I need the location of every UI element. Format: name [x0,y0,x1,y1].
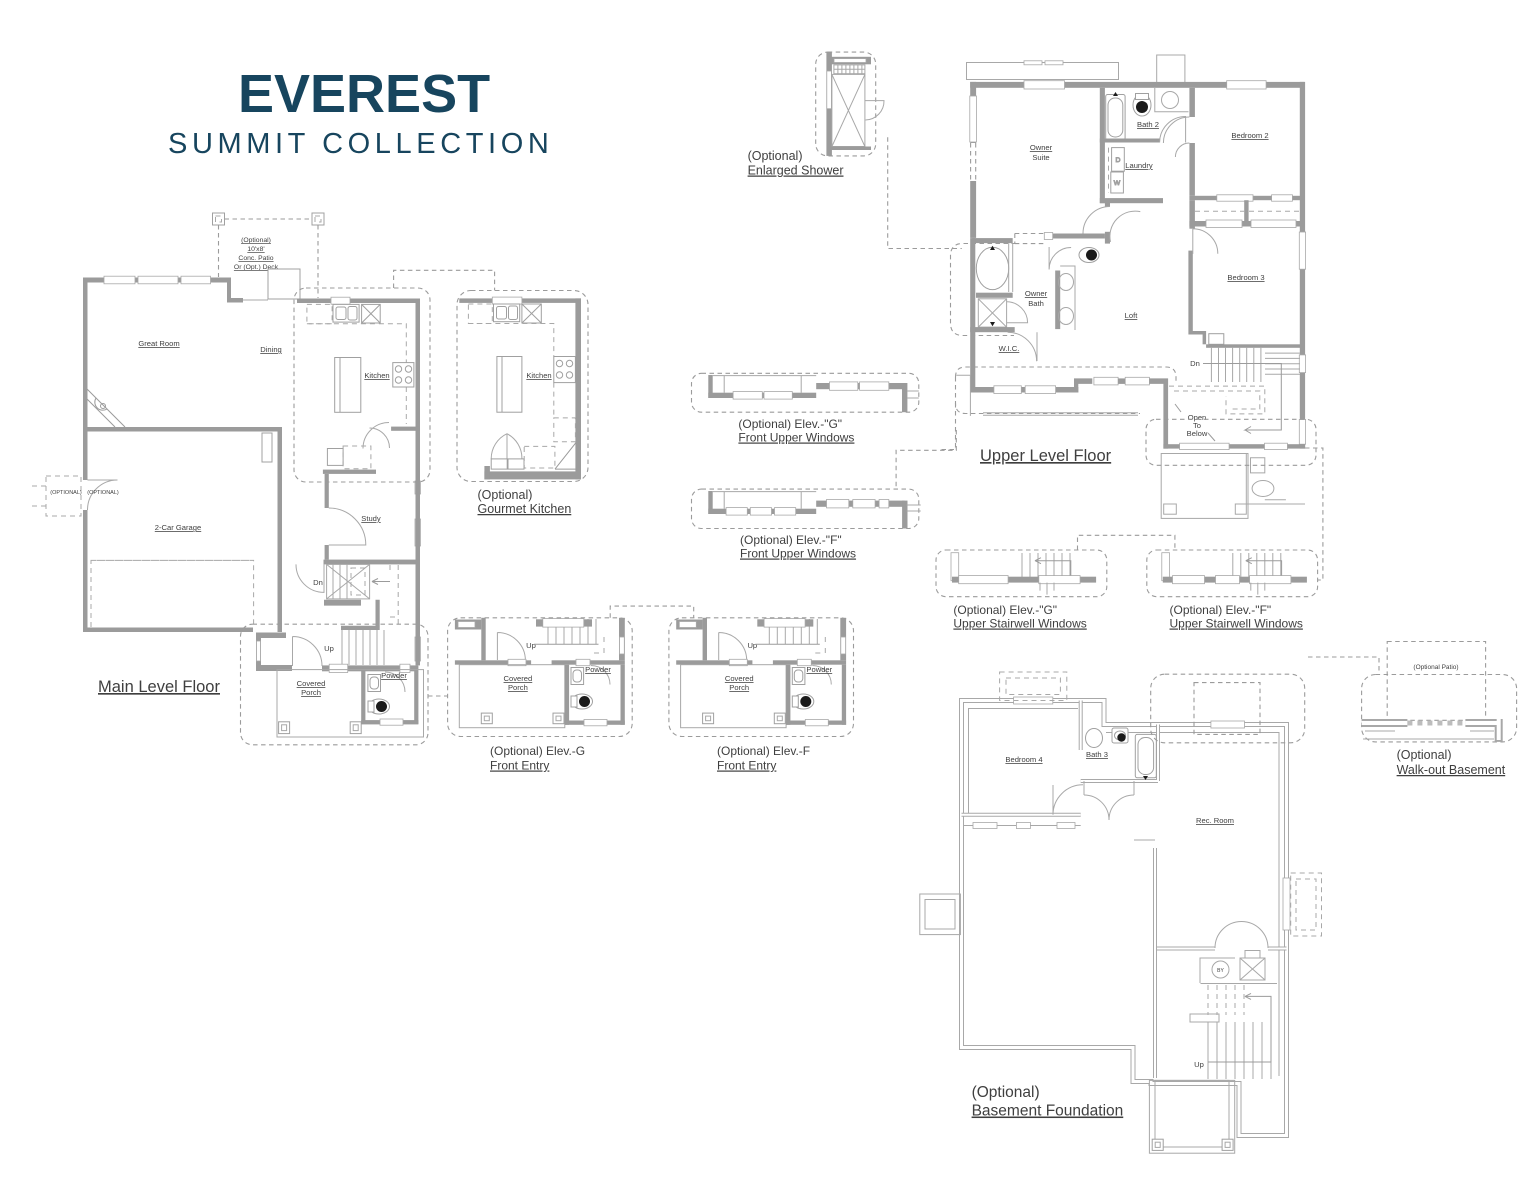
svg-text:Rec. Room: Rec. Room [1196,816,1234,825]
svg-text:Basement Foundation: Basement Foundation [972,1103,1124,1120]
svg-text:Kitchen: Kitchen [364,371,389,380]
svg-text:Bedroom 3: Bedroom 3 [1227,273,1264,282]
svg-text:(Optional) Elev.-"F": (Optional) Elev.-"F" [740,533,842,547]
svg-text:Main Level Floor: Main Level Floor [98,678,220,696]
svg-text:Loft: Loft [1125,311,1139,320]
svg-text:Enlarged Shower: Enlarged Shower [748,164,844,178]
svg-text:Great Room: Great Room [138,339,179,348]
svg-text:Bath 3: Bath 3 [1086,750,1108,759]
svg-text:Front Entry: Front Entry [717,759,776,773]
svg-text:(Optional): (Optional) [972,1084,1040,1101]
svg-text:Porch: Porch [301,688,321,697]
svg-text:Dn: Dn [1190,359,1200,368]
svg-text:SUMMIT COLLECTION: SUMMIT COLLECTION [168,128,553,160]
svg-text:EVEREST: EVEREST [238,64,490,124]
svg-text:Dining: Dining [260,345,282,354]
svg-text:Upper Level Floor: Upper Level Floor [980,447,1112,465]
svg-text:(Optional): (Optional) [1397,748,1452,762]
svg-text:(Optional) Elev.-G: (Optional) Elev.-G [490,744,585,758]
svg-text:Below: Below [1187,429,1208,438]
svg-text:Upper Stairwell Windows: Upper Stairwell Windows [953,617,1086,631]
svg-text:Suite: Suite [1032,153,1049,162]
svg-text:Front Upper Windows: Front Upper Windows [738,431,854,445]
svg-text:Front Entry: Front Entry [490,759,549,773]
svg-text:BY: BY [1217,968,1224,974]
svg-text:Walk-out Basement: Walk-out Basement [1397,763,1506,777]
svg-text:W.I.C.: W.I.C. [999,344,1020,353]
svg-text:(Optional) Elev.-"G": (Optional) Elev.-"G" [953,603,1057,617]
svg-text:(Optional): (Optional) [748,149,803,163]
svg-text:Bedroom 4: Bedroom 4 [1005,755,1042,764]
svg-text:10'x8': 10'x8' [247,246,264,253]
svg-text:Powder: Powder [381,671,407,680]
svg-text:W: W [1114,180,1121,187]
svg-text:(Optional) Elev.-"F": (Optional) Elev.-"F" [1170,603,1272,617]
svg-text:(Optional): (Optional) [241,237,271,244]
svg-text:Gourmet Kitchen: Gourmet Kitchen [478,502,572,516]
svg-text:Bath 2: Bath 2 [1137,120,1159,129]
svg-text:(Optional) Elev.-F: (Optional) Elev.-F [717,744,810,758]
svg-text:Covered: Covered [297,679,326,688]
svg-text:(OPTIONAL): (OPTIONAL) [87,490,119,496]
svg-text:Up: Up [1194,1060,1204,1069]
svg-text:Bedroom 2: Bedroom 2 [1231,131,1268,140]
svg-text:Laundry: Laundry [1125,161,1153,170]
svg-text:Up: Up [324,644,334,653]
svg-text:Dn: Dn [313,578,323,587]
svg-text:(Optional Patio): (Optional Patio) [1413,664,1458,671]
svg-text:(OPTIONAL): (OPTIONAL) [50,490,82,496]
svg-text:(Optional) Elev.-"G": (Optional) Elev.-"G" [738,417,842,431]
svg-text:Front Upper Windows: Front Upper Windows [740,547,856,561]
svg-text:Upper Stairwell Windows: Upper Stairwell Windows [1170,617,1303,631]
svg-text:Conc. Patio: Conc. Patio [238,255,273,262]
svg-text:Owner: Owner [1025,289,1048,298]
svg-text:Kitchen: Kitchen [526,371,551,380]
svg-text:2-Car Garage: 2-Car Garage [155,523,201,532]
svg-text:(Optional): (Optional) [478,488,533,502]
svg-text:D: D [1116,157,1121,164]
svg-text:Owner: Owner [1030,143,1053,152]
svg-text:Study: Study [361,514,381,523]
svg-text:Bath: Bath [1028,299,1044,308]
